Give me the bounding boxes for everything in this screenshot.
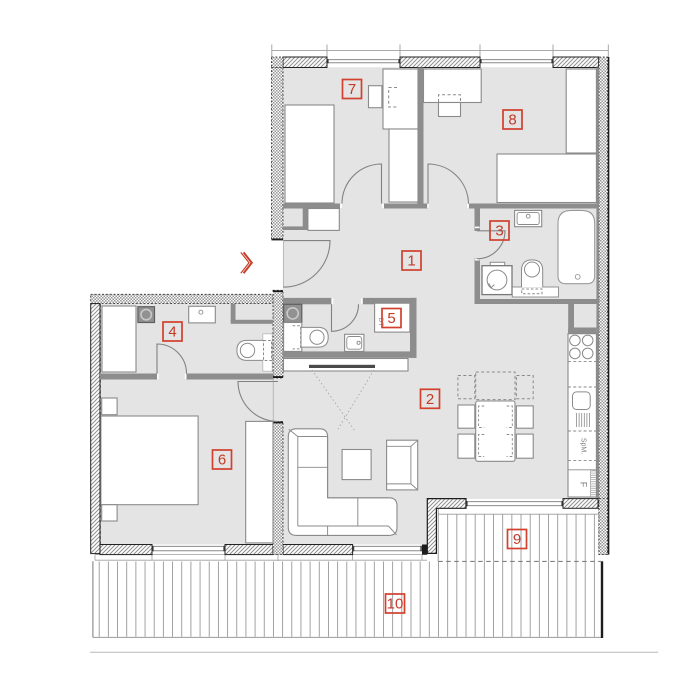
svg-text:8: 8 <box>508 112 516 129</box>
svg-text:3: 3 <box>495 223 503 240</box>
svg-text:9: 9 <box>513 531 521 548</box>
svg-text:5: 5 <box>387 310 395 327</box>
svg-text:SpM.: SpM. <box>580 438 587 454</box>
svg-text:2: 2 <box>426 391 434 408</box>
svg-text:7: 7 <box>348 81 356 98</box>
svg-text:6: 6 <box>218 452 226 469</box>
svg-text:10: 10 <box>387 596 404 613</box>
svg-text:4: 4 <box>168 324 176 341</box>
svg-text:F: F <box>579 482 589 488</box>
svg-text:1: 1 <box>407 253 415 270</box>
